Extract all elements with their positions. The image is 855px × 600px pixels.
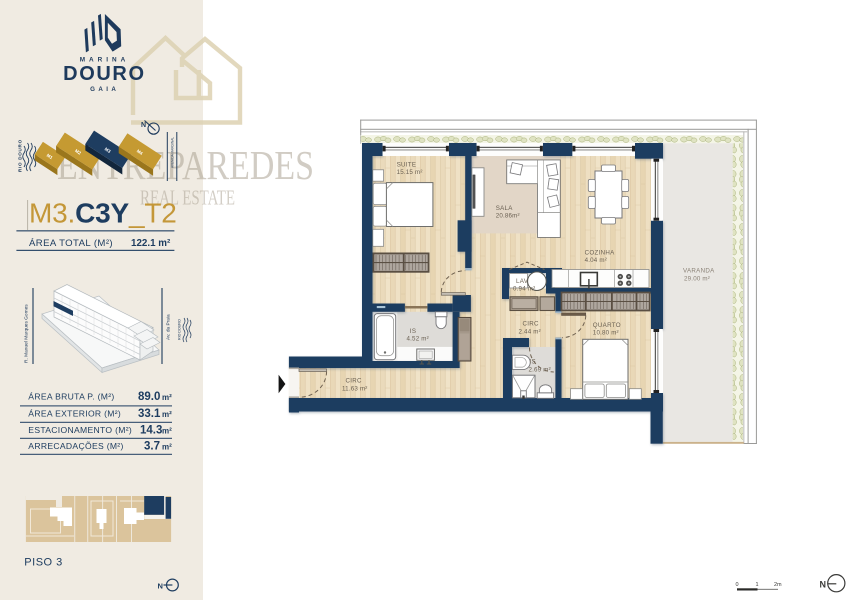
svg-text:4.52 m²: 4.52 m² (407, 336, 429, 343)
svg-text:CIRC: CIRC (346, 378, 363, 385)
svg-text:M3.C3Y_T2: M3.C3Y_T2 (29, 198, 177, 229)
svg-text:ÁREA BRUTA P. (M²): ÁREA BRUTA P. (M²) (28, 392, 114, 402)
svg-text:14.3: 14.3 (140, 425, 162, 437)
svg-text:ARRECADAÇÕES (M²): ARRECADAÇÕES (M²) (28, 441, 123, 451)
svg-text:1: 1 (756, 582, 759, 588)
svg-text:2.69 m²: 2.69 m² (529, 367, 551, 374)
svg-text:20.86m²: 20.86m² (496, 213, 520, 220)
svg-text:122.1 m²: 122.1 m² (131, 238, 171, 249)
svg-text:COZINHA: COZINHA (585, 250, 616, 257)
svg-text:0: 0 (736, 582, 739, 588)
svg-text:SALA: SALA (496, 205, 514, 212)
svg-text:LAV: LAV (516, 278, 529, 285)
svg-text:N: N (158, 582, 163, 591)
svg-text:DOURO: DOURO (63, 63, 145, 85)
svg-text:0.94 m²: 0.94 m² (513, 286, 535, 293)
svg-text:SUITE: SUITE (397, 162, 417, 169)
svg-text:4.04 m²: 4.04 m² (585, 257, 607, 264)
svg-text:IS: IS (530, 359, 536, 366)
svg-text:m²: m² (162, 393, 172, 402)
svg-text:2m: 2m (774, 582, 782, 588)
svg-text:m²: m² (162, 443, 172, 452)
svg-text:29.00 m²: 29.00 m² (684, 276, 710, 283)
svg-text:ÁREA EXTERIOR (M²): ÁREA EXTERIOR (M²) (28, 409, 121, 419)
svg-text:CIRC: CIRC (523, 321, 540, 328)
svg-text:QUARTO: QUARTO (593, 322, 621, 329)
svg-text:GAIA: GAIA (90, 86, 119, 93)
svg-text:15.15 m²: 15.15 m² (397, 169, 423, 176)
svg-text:RIO DOURO: RIO DOURO (18, 139, 23, 172)
svg-text:3.7: 3.7 (144, 441, 160, 453)
svg-text:m²: m² (162, 427, 172, 436)
svg-text:ÁREA TOTAL (M²): ÁREA TOTAL (M²) (29, 238, 113, 249)
svg-text:2.44 m²: 2.44 m² (519, 329, 541, 336)
svg-text:RIO DOURO: RIO DOURO (178, 319, 182, 340)
svg-text:IS: IS (410, 328, 416, 335)
svg-text:N: N (820, 580, 827, 590)
svg-text:ESTACIONAMENTO (M²): ESTACIONAMENTO (M²) (28, 425, 132, 435)
svg-text:VARANDA: VARANDA (683, 268, 715, 275)
svg-text:R. Manuel Marques Gomes: R. Manuel Marques Gomes (24, 304, 30, 363)
svg-text:33.1: 33.1 (138, 408, 161, 420)
svg-text:89.0: 89.0 (138, 391, 160, 403)
svg-text:10.80 m²: 10.80 m² (593, 330, 619, 337)
svg-text:AVENIDA MARGINAL: AVENIDA MARGINAL (171, 137, 175, 168)
svg-text:m²: m² (162, 410, 172, 419)
svg-text:Av. da Praia: Av. da Praia (166, 314, 172, 340)
svg-text:11.63 m²: 11.63 m² (342, 386, 368, 393)
svg-text:N: N (141, 122, 146, 129)
svg-text:PISO 3: PISO 3 (24, 557, 62, 569)
